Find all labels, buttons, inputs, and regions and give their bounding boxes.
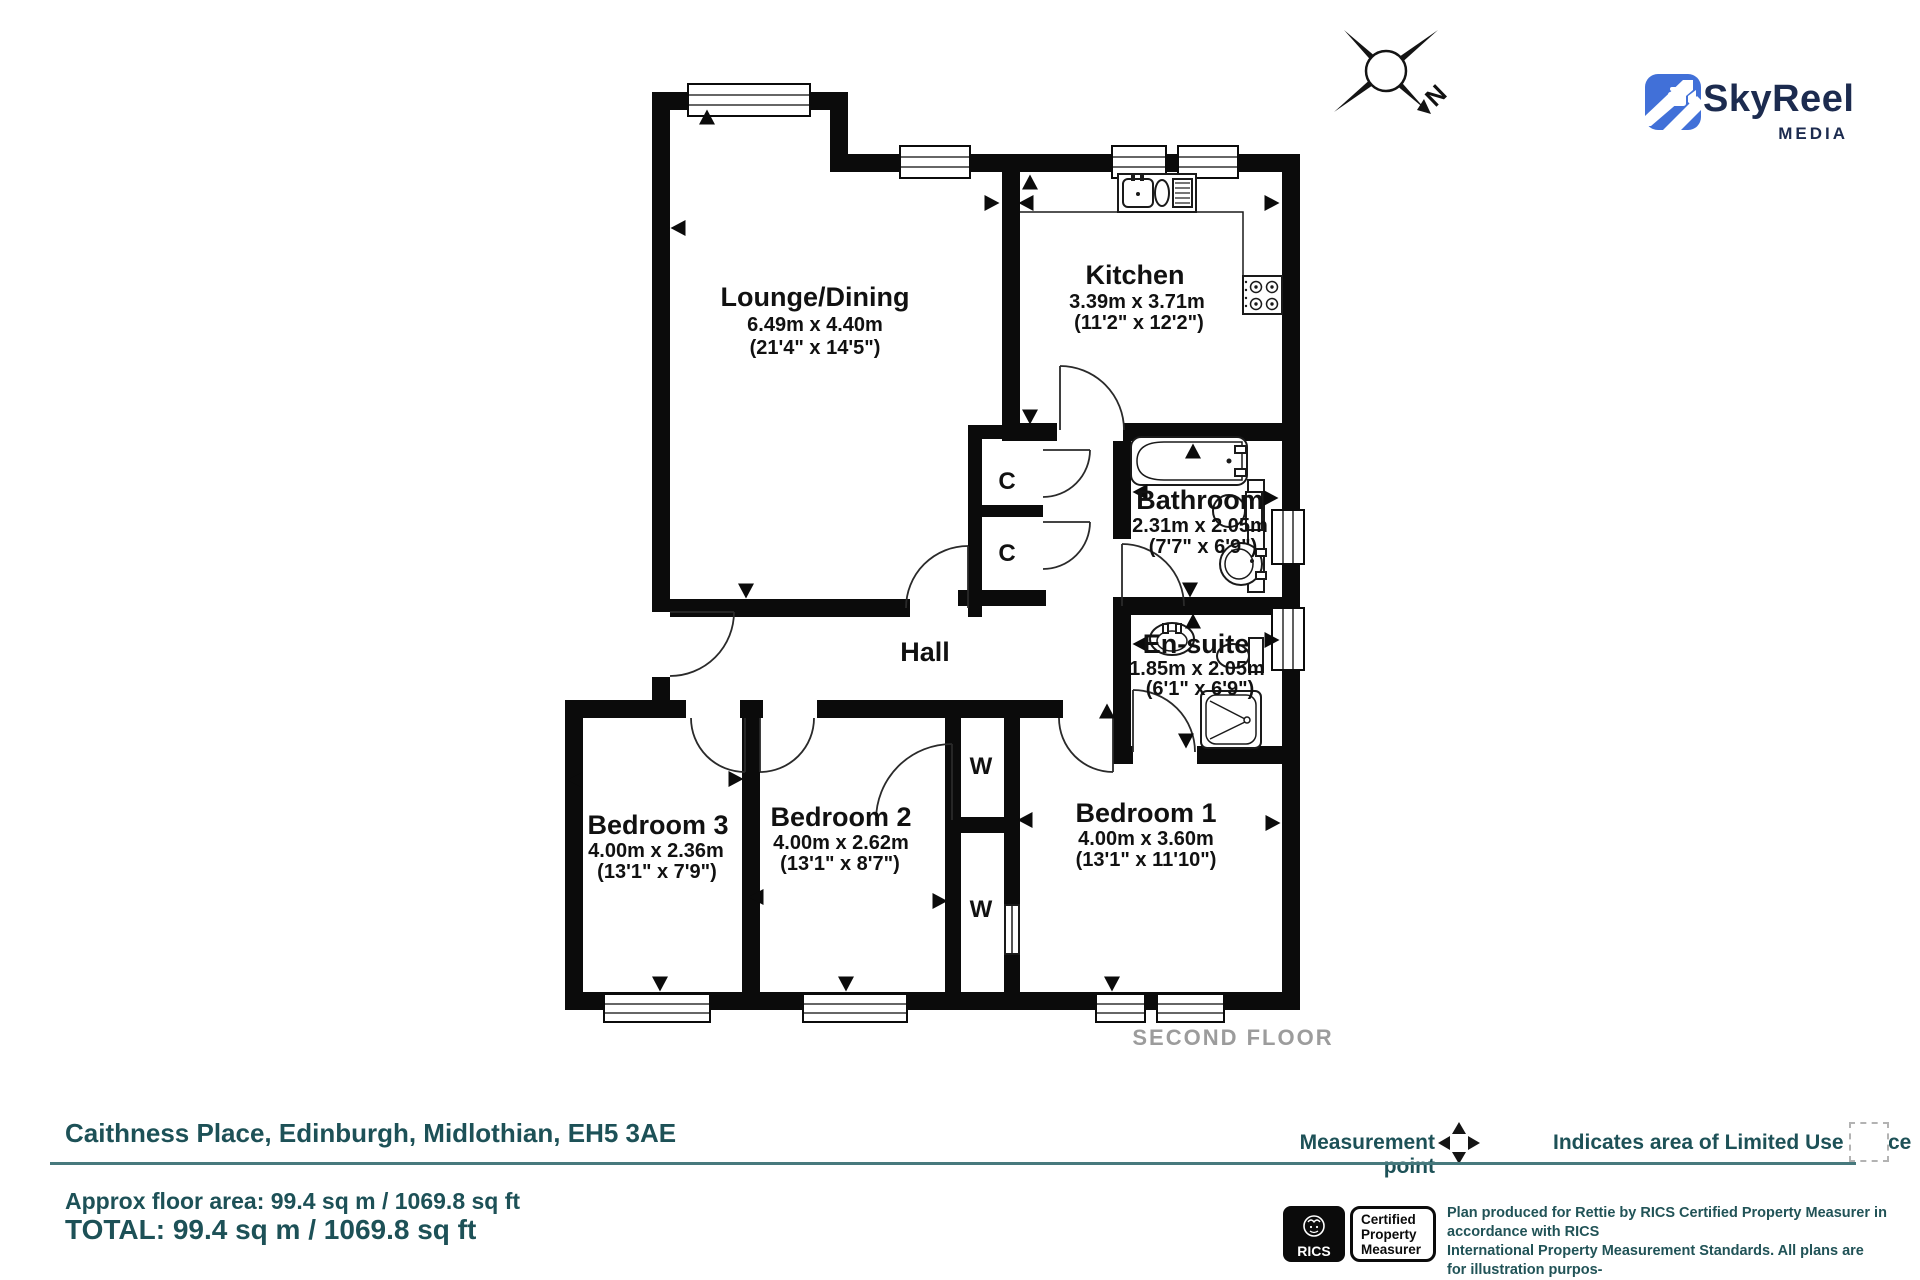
door-cupboard-2 [1043,522,1090,569]
disclaimer-line: International Property Measurement Stand… [1447,1242,1887,1280]
door-bedroom3 [691,718,745,772]
room-dim-metric: 1.85m x 2.05m [1129,658,1265,680]
room-dim-imperial: (13'1" x 11'10") [1076,849,1217,871]
rics-logo: RICS [1283,1206,1345,1262]
door-bedroom1 [1059,718,1113,772]
floor-title: SECOND FLOOR [1132,1025,1333,1050]
closet-label-wardrobe: W [970,753,993,780]
limited-use-swatch [1849,1122,1889,1162]
room-dim-metric: 3.39m x 3.71m [1069,291,1205,313]
measurement-point-icon [1438,1122,1480,1164]
rics-certified-badge: Certified Property Measurer [1350,1206,1436,1262]
room-dim-metric: 4.00m x 3.60m [1078,828,1214,850]
kitchen-sink [1118,173,1196,212]
floorplan-page: Lounge/Dining 6.49m x 4.40m (21'4" x 14'… [0,0,1920,1280]
badge-line: Certified [1361,1212,1433,1227]
room-dim-imperial: (6'1" x 6'9") [1146,678,1255,700]
room-dim-metric: 6.49m x 4.40m [747,314,883,336]
room-dim-imperial: (11'2" x 12'2") [1074,312,1204,334]
property-address: Caithness Place, Edinburgh, Midlothian, … [65,1118,676,1149]
room-dim-metric: 2.31m x 2.05m [1132,515,1268,537]
window [803,994,907,1022]
brand-tagline: MEDIA [1703,124,1848,144]
badge-line: Measurer [1361,1242,1433,1257]
door-bedroom2 [760,718,814,772]
door-wardrobe-2 [1005,905,1019,954]
room-label-bathroom: Bathroom [1136,485,1264,515]
disclaimer-text: Plan produced for Rettie by RICS Certifi… [1447,1204,1887,1280]
closet-label-cupboard: C [998,468,1015,495]
closet-label-wardrobe: W [970,896,993,923]
skyreel-logo-icon [1645,74,1701,130]
measurement-point-label: Measurement point [1250,1131,1435,1179]
floor-plan-drawing: Lounge/Dining 6.49m x 4.40m (21'4" x 14'… [0,0,1920,1280]
room-label-lounge: Lounge/Dining [721,282,910,312]
window [604,994,710,1022]
brand-name: SkyReel [1703,78,1854,121]
room-dim-imperial: (21'4" x 14'5") [750,337,881,359]
room-dim-imperial: (7'7" x 6'9") [1149,536,1258,558]
room-label-bedroom1: Bedroom 1 [1075,798,1216,828]
rics-wordmark: RICS [1297,1243,1330,1259]
room-label-bedroom2: Bedroom 2 [770,802,911,832]
window [900,146,970,178]
window [1272,510,1304,564]
room-label-hall: Hall [900,637,950,667]
room-label-ensuite: En-suite [1143,629,1250,659]
window [1157,994,1224,1022]
compass-rose-icon: N [1334,30,1452,114]
room-dim-metric: 4.00m x 2.62m [773,832,909,854]
room-label-bedroom3: Bedroom 3 [587,810,728,840]
divider-line [50,1162,1856,1165]
total-floor-area: TOTAL: 99.4 sq m / 1069.8 sq ft [65,1214,476,1246]
approx-floor-area: Approx floor area: 99.4 sq m / 1069.8 sq… [65,1188,520,1215]
room-dim-imperial: (13'1" x 8'7") [780,853,900,875]
room-dim-imperial: (13'1" x 7'9") [597,861,717,883]
kitchen-hob [1243,276,1282,314]
room-label-kitchen: Kitchen [1085,260,1184,290]
room-dim-metric: 4.00m x 2.36m [588,840,724,862]
door-entrance [670,612,734,676]
door-kitchen [1060,366,1124,430]
closet-label-cupboard: C [998,540,1015,567]
window [1096,994,1145,1022]
door-cupboard-1 [1043,450,1090,497]
badge-line: Property [1361,1227,1433,1242]
disclaimer-line: Plan produced for Rettie by RICS Certifi… [1447,1204,1887,1242]
bathtub [1131,437,1247,485]
